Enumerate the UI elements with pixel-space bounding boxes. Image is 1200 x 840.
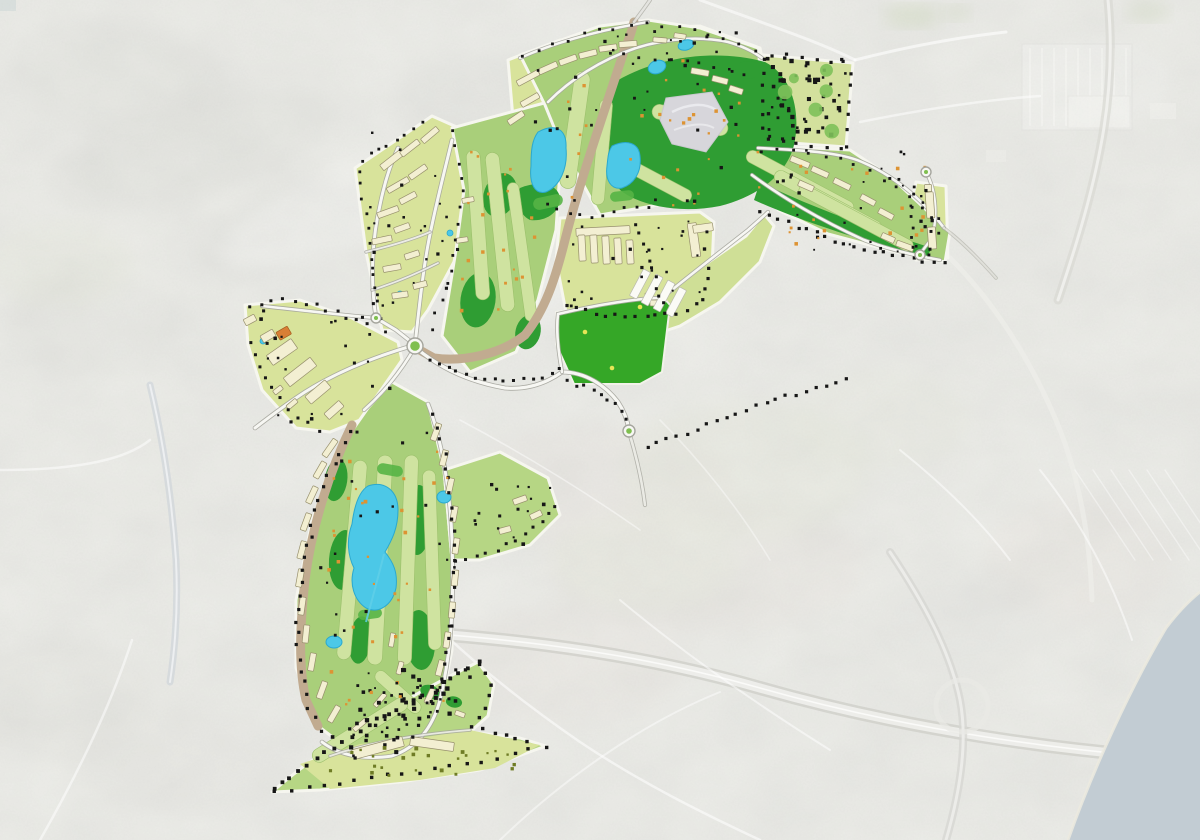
- tree-dot: [549, 487, 551, 489]
- tree-dot: [737, 43, 740, 46]
- tree-dot: [676, 168, 679, 171]
- tree-dot: [395, 682, 398, 685]
- tree-dot: [439, 698, 441, 700]
- tree-dot: [305, 544, 308, 547]
- tree-dot: [522, 377, 525, 380]
- tree-dot: [577, 152, 580, 155]
- tree-dot: [449, 676, 452, 679]
- tree-dot: [412, 698, 416, 702]
- tree-dot: [573, 199, 576, 202]
- tree-dot: [373, 286, 376, 289]
- tree-dot: [780, 103, 784, 107]
- tree-dot: [349, 745, 353, 749]
- tree-dot: [365, 212, 368, 215]
- tree-dot: [481, 250, 484, 253]
- tree-dot: [372, 755, 374, 757]
- tree-dot: [258, 365, 261, 368]
- tree-dot: [373, 765, 376, 768]
- tree-dot: [457, 223, 460, 226]
- tree-dot: [340, 740, 344, 744]
- tree-dot: [424, 225, 426, 227]
- tree-dot: [679, 40, 682, 43]
- tree-dot: [368, 723, 372, 727]
- tree-dot: [629, 248, 632, 251]
- tree-dot: [444, 651, 447, 654]
- tree-dot: [825, 156, 828, 159]
- tree-dot: [921, 215, 925, 219]
- masterplan-map: [0, 0, 1200, 840]
- tree-dot: [476, 555, 479, 558]
- tree-dot: [412, 702, 416, 706]
- tree-dot: [640, 114, 643, 117]
- tree-dot: [658, 113, 661, 116]
- tree-dot: [277, 414, 279, 416]
- tree-dot: [664, 437, 667, 440]
- tree-dot: [388, 387, 391, 390]
- tree-dot: [910, 236, 913, 239]
- tree-dot: [567, 40, 570, 43]
- tree-dot: [558, 367, 561, 370]
- tree-dot: [912, 227, 915, 230]
- tree-dot: [416, 686, 419, 689]
- tree-dot: [598, 28, 601, 31]
- tree-dot: [708, 132, 710, 134]
- building: [619, 40, 637, 47]
- tree-dot: [883, 179, 886, 182]
- tree-dot: [465, 754, 468, 757]
- tree-dot: [697, 192, 699, 194]
- tree-dot: [633, 97, 636, 100]
- tree-dot: [340, 413, 342, 415]
- tree-dot: [444, 467, 447, 470]
- tree-dot: [517, 508, 520, 511]
- tree-dot: [419, 696, 422, 699]
- tree-dot: [895, 185, 898, 188]
- tree-dot: [591, 216, 594, 219]
- tree-dot: [839, 157, 842, 160]
- tree-dot: [372, 302, 375, 305]
- tree-dot: [513, 536, 515, 538]
- tree-dot: [448, 625, 451, 628]
- tree-dot: [808, 75, 811, 78]
- tree-dot: [294, 300, 297, 303]
- tree-dot: [359, 182, 362, 185]
- tree-dot: [654, 59, 657, 62]
- tree-dot: [527, 510, 529, 512]
- tree-dot: [398, 713, 401, 716]
- tree-dot: [582, 84, 585, 87]
- tree-dot: [399, 148, 402, 151]
- tree-dot: [367, 227, 370, 230]
- tree-dot: [454, 699, 457, 702]
- tree-dot: [768, 128, 771, 131]
- tree-dot: [464, 558, 467, 561]
- tree-dot: [369, 242, 372, 245]
- tree-dot: [371, 267, 374, 270]
- tree-dot: [534, 120, 537, 123]
- tree-dot: [393, 592, 396, 595]
- tree-dot: [370, 776, 373, 779]
- tree-dot: [670, 58, 673, 61]
- tree-dot: [429, 359, 432, 362]
- tree-dot: [600, 393, 603, 396]
- tree-dot: [908, 195, 911, 198]
- tree-dot: [369, 206, 371, 208]
- tree-dot: [309, 524, 312, 527]
- tree-dot: [728, 68, 730, 70]
- tree-dot: [743, 73, 746, 76]
- roundabout-island: [918, 253, 922, 257]
- tree-dot: [782, 179, 785, 182]
- building: [590, 235, 598, 263]
- tree-dot: [582, 384, 585, 387]
- tree-dot: [326, 582, 328, 584]
- tree-dot: [383, 691, 386, 694]
- tree-dot: [461, 278, 464, 281]
- building: [602, 236, 610, 264]
- tree-dot: [653, 313, 656, 316]
- tree-dot: [374, 724, 377, 727]
- tree-dot: [438, 543, 440, 545]
- tree-dot: [436, 252, 439, 255]
- tree-dot: [418, 772, 421, 775]
- tree-dot: [368, 333, 371, 336]
- tree-dot: [456, 671, 460, 675]
- tree-dot: [353, 362, 356, 365]
- tree-dot: [402, 697, 405, 700]
- tree-dot: [650, 266, 653, 269]
- tree-dot: [439, 203, 441, 205]
- tree-dot: [453, 566, 456, 569]
- tree-dot: [795, 394, 798, 397]
- tree-dot: [430, 685, 434, 689]
- tree-dot: [436, 451, 438, 453]
- tree-dot: [807, 97, 811, 101]
- tree-dot: [777, 97, 780, 100]
- tree-dot: [281, 297, 284, 300]
- tree-dot: [350, 751, 353, 754]
- tree-dot: [470, 725, 473, 728]
- tree-dot: [574, 76, 577, 79]
- tree-dot: [630, 24, 633, 27]
- tree-dot: [629, 158, 632, 161]
- tree-dot: [450, 506, 453, 509]
- tree-dot: [441, 240, 443, 242]
- tree-dot: [920, 195, 922, 197]
- tree-dot: [703, 247, 706, 250]
- tree-dot: [392, 505, 394, 507]
- tree-dot: [847, 100, 850, 103]
- tree-dot: [334, 553, 336, 555]
- tree-dot: [549, 129, 552, 132]
- tree-dot: [903, 153, 905, 155]
- tree-dot: [344, 317, 347, 320]
- tree-dot: [402, 216, 405, 219]
- tree-dot: [308, 785, 311, 788]
- tree-dot: [365, 610, 368, 613]
- tree-dot: [851, 168, 853, 170]
- tree-dot: [843, 222, 845, 224]
- tree-dot: [305, 764, 309, 768]
- tree-dot: [358, 708, 362, 712]
- tree-dot: [804, 120, 807, 123]
- tree-dot: [922, 201, 925, 204]
- tree-dot: [434, 691, 438, 695]
- tree-dot: [758, 186, 760, 188]
- tree-dot: [799, 165, 802, 168]
- park-lawn: [820, 84, 833, 97]
- tree-dot: [495, 488, 498, 491]
- tree-dot: [361, 316, 364, 319]
- tree-dot: [805, 128, 809, 132]
- tree-dot: [316, 499, 319, 502]
- tree-dot: [849, 72, 852, 75]
- tree-dot: [758, 210, 761, 213]
- tree-dot: [669, 119, 671, 121]
- tree-dot: [637, 56, 640, 59]
- tree-dot: [417, 724, 420, 727]
- tree-dot: [468, 675, 471, 678]
- tree-dot: [413, 282, 415, 284]
- tree-dot: [375, 717, 379, 721]
- tree-dot: [431, 702, 434, 705]
- tree-dot: [776, 148, 779, 151]
- tree-dot: [440, 768, 444, 772]
- tree-dot: [460, 309, 464, 313]
- tree-dot: [259, 317, 263, 321]
- tree-dot: [412, 692, 415, 695]
- tree-dot: [882, 250, 885, 253]
- tree-dot: [429, 588, 432, 591]
- tree-dot: [881, 168, 883, 170]
- tree-dot: [467, 259, 470, 262]
- tree-dot: [425, 258, 427, 260]
- tree-dot: [453, 544, 456, 547]
- tree-dot: [334, 320, 337, 323]
- tree-dot: [583, 32, 586, 35]
- tree-dot: [792, 205, 795, 208]
- tree-dot: [912, 246, 915, 249]
- tree-dot: [611, 28, 614, 31]
- tree-dot: [584, 308, 587, 311]
- tree-dot: [891, 254, 894, 257]
- tree-dot: [817, 79, 820, 82]
- tree-dot: [810, 145, 813, 148]
- tree-dot: [366, 322, 369, 325]
- tree-dot: [338, 782, 341, 785]
- tree-dot: [898, 178, 901, 181]
- tree-dot: [933, 261, 936, 264]
- tree-dot: [355, 722, 359, 726]
- tree-dot: [478, 512, 481, 515]
- tree-dot: [581, 291, 584, 294]
- field-speck: [638, 305, 643, 310]
- tree-dot: [768, 135, 771, 138]
- tree-dot: [433, 767, 436, 770]
- tree-dot: [822, 76, 824, 78]
- tree-dot: [438, 362, 441, 365]
- tree-dot: [361, 502, 364, 505]
- tree-dot: [807, 152, 810, 155]
- tree-dot: [353, 756, 356, 759]
- tree-dot: [575, 306, 578, 309]
- tree-dot: [406, 583, 408, 585]
- tree-dot: [486, 752, 488, 754]
- tree-dot: [352, 779, 355, 782]
- tree-dot: [863, 248, 866, 251]
- tree-dot: [297, 608, 300, 611]
- tree-dot: [401, 441, 404, 444]
- tree-dot: [834, 241, 837, 244]
- tree-dot: [447, 712, 451, 716]
- tree-dot: [686, 59, 689, 62]
- tree-dot: [910, 205, 913, 208]
- tree-dot: [860, 207, 862, 209]
- tree-dot: [533, 236, 536, 239]
- tree-dot: [454, 773, 457, 776]
- tree-dot: [612, 49, 614, 51]
- tree-dot: [661, 248, 663, 250]
- tree-dot: [494, 377, 497, 380]
- tree-dot: [447, 491, 450, 494]
- tree-dot: [642, 243, 645, 246]
- tree-dot: [634, 223, 637, 226]
- tree-dot: [384, 718, 387, 721]
- tree-dot: [735, 31, 738, 34]
- tree-dot: [693, 200, 696, 203]
- tree-dot: [817, 130, 821, 134]
- tree-dot: [556, 127, 559, 130]
- tree-dot: [506, 190, 509, 193]
- tree-dot: [771, 106, 773, 108]
- tree-dot: [910, 215, 913, 218]
- tree-dot: [714, 109, 717, 112]
- tree-dot: [761, 127, 764, 130]
- tree-dot: [796, 126, 799, 129]
- tree-dot: [358, 170, 361, 173]
- tree-dot: [465, 373, 468, 376]
- tree-dot: [653, 30, 656, 33]
- tree-dot: [498, 514, 501, 517]
- tree-dot: [334, 634, 337, 637]
- tree-dot: [373, 583, 375, 585]
- tree-dot: [504, 282, 507, 285]
- tree-dot: [823, 235, 826, 238]
- tree-dot: [601, 214, 604, 217]
- tree-dot: [447, 637, 450, 640]
- tree-dot: [318, 430, 321, 433]
- tree-dot: [792, 149, 795, 152]
- tree-dot: [815, 386, 818, 389]
- tree-dot: [930, 216, 933, 219]
- tree-dot: [613, 313, 616, 316]
- tree-dot: [273, 790, 276, 793]
- tree-dot: [484, 707, 487, 710]
- tree-dot: [662, 176, 665, 179]
- tree-dot: [445, 216, 448, 219]
- tree-dot: [427, 754, 430, 757]
- residential-pool: [447, 230, 453, 236]
- tree-dot: [348, 460, 352, 464]
- tree-dot: [791, 124, 795, 128]
- tree-dot: [782, 79, 786, 83]
- tree-dot: [344, 441, 347, 444]
- tree-dot: [660, 25, 663, 28]
- tree-dot: [526, 747, 529, 750]
- tree-dot: [537, 69, 540, 72]
- tree-dot: [699, 291, 701, 293]
- tree-dot: [754, 50, 757, 53]
- tree-dot: [403, 531, 407, 535]
- tree-dot: [682, 230, 685, 233]
- tree-dot: [284, 368, 286, 370]
- tree-dot: [355, 488, 357, 490]
- tree-dot: [754, 403, 757, 406]
- tree-dot: [443, 662, 446, 665]
- tree-dot: [787, 220, 790, 223]
- tree-dot: [331, 735, 335, 739]
- tree-dot: [372, 251, 375, 254]
- tree-dot: [452, 609, 455, 612]
- tree-dot: [738, 102, 741, 105]
- tree-dot: [896, 167, 900, 171]
- valley-pond: [326, 636, 342, 648]
- tree-dot: [573, 298, 576, 301]
- tree-dot: [686, 433, 689, 436]
- tree-dot: [796, 130, 800, 134]
- tree-dot: [805, 390, 808, 393]
- tree-dot: [567, 101, 570, 104]
- tree-dot: [648, 206, 651, 209]
- roundabout-island: [626, 428, 632, 434]
- tree-dot: [570, 305, 573, 308]
- tree-dot: [585, 124, 588, 127]
- tree-dot: [385, 145, 388, 148]
- tree-dot: [320, 730, 323, 733]
- tree-dot: [696, 254, 698, 256]
- tree-dot: [805, 65, 808, 68]
- tree-dot: [873, 251, 876, 254]
- tree-dot: [365, 734, 369, 738]
- tree-dot: [415, 769, 417, 771]
- tree-dot: [359, 749, 361, 751]
- tree-dot: [401, 714, 405, 718]
- tree-dot: [888, 177, 891, 180]
- tree-dot: [715, 51, 717, 53]
- tree-dot: [771, 65, 775, 69]
- tree-dot: [385, 734, 389, 738]
- tree-dot: [703, 89, 706, 92]
- tree-dot: [370, 691, 373, 694]
- tree-dot: [504, 173, 506, 175]
- tree-dot: [417, 717, 421, 721]
- tree-dot: [632, 63, 634, 65]
- tree-dot: [931, 219, 934, 222]
- tree-dot: [281, 780, 285, 784]
- tree-dot: [568, 107, 571, 110]
- tree-dot: [547, 512, 550, 515]
- tree-dot: [299, 658, 302, 661]
- tree-dot: [344, 345, 347, 348]
- tree-dot: [767, 138, 770, 141]
- tree-dot: [337, 560, 341, 564]
- tree-dot: [481, 213, 484, 216]
- tree-dot: [403, 134, 406, 137]
- tree-dot: [930, 230, 933, 233]
- tree-dot: [915, 245, 918, 248]
- tree-dot: [401, 668, 405, 672]
- tree-dot: [249, 341, 252, 344]
